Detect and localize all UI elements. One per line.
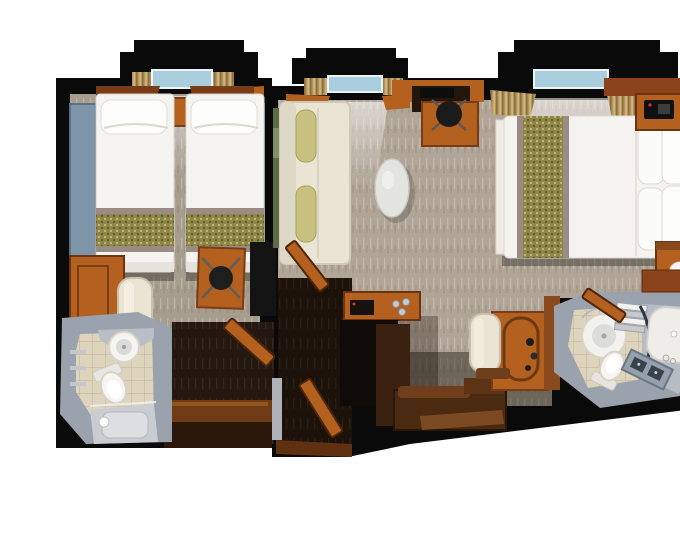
twin-room-window <box>152 70 212 88</box>
curtain <box>490 90 536 118</box>
wall-end-face <box>272 378 282 440</box>
pillow <box>101 100 167 134</box>
cup <box>403 299 410 306</box>
window-bay-middle-step <box>306 48 396 60</box>
headboard-panel-left <box>70 104 96 262</box>
pillow <box>638 188 664 250</box>
cup <box>393 301 400 308</box>
pillow <box>662 186 680 250</box>
window-bay-right-step <box>514 40 660 54</box>
twin-bed-1 <box>96 94 174 281</box>
twin-desk-with-chair <box>197 247 245 309</box>
bolster-pillow <box>296 186 316 242</box>
curtain <box>304 78 327 95</box>
vanity-items <box>526 338 534 346</box>
tv-panel <box>250 242 276 316</box>
double-bed <box>496 116 680 266</box>
shower-fixture <box>99 417 109 427</box>
pillow <box>638 122 664 184</box>
bolster-pillow <box>296 110 316 162</box>
master-window <box>534 70 608 88</box>
laptop <box>420 88 454 98</box>
window-bay-left-step <box>134 40 244 54</box>
espresso-machine <box>350 300 374 315</box>
bathroom-shelf-cabinet <box>642 270 680 292</box>
twin-bathroom <box>60 312 172 444</box>
sofa <box>280 102 350 264</box>
suite-floor-plan <box>40 16 680 526</box>
cup <box>399 309 406 316</box>
living-window <box>328 76 382 92</box>
desk-chair <box>436 101 462 127</box>
pillow <box>191 100 257 134</box>
floor-plan-canvas <box>40 16 680 526</box>
desk-chair <box>209 266 233 290</box>
nightstand-head <box>636 94 680 130</box>
